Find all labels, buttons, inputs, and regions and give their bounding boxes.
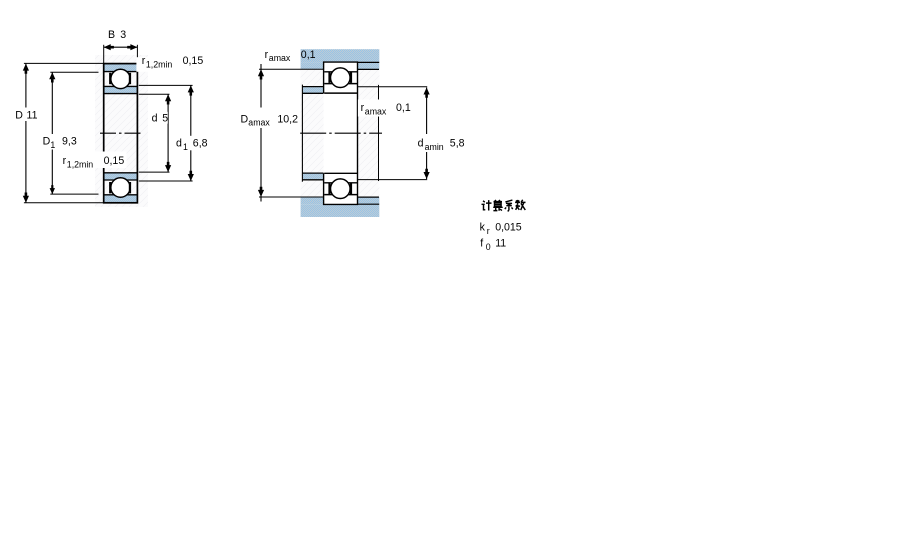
svg-text:d: d — [418, 137, 424, 149]
svg-text:f: f — [480, 238, 483, 250]
svg-text:d: d — [152, 112, 158, 124]
svg-text:1: 1 — [50, 140, 55, 150]
svg-text:D: D — [15, 109, 23, 121]
svg-text:0,15: 0,15 — [104, 155, 125, 167]
svg-text:5: 5 — [162, 112, 168, 124]
svg-text:0,15: 0,15 — [183, 55, 204, 67]
svg-text:1,2min: 1,2min — [146, 60, 173, 70]
svg-text:amax: amax — [269, 53, 291, 63]
svg-text:0,1: 0,1 — [301, 49, 316, 61]
svg-text:amin: amin — [425, 142, 444, 152]
svg-text:0,015: 0,015 — [495, 222, 522, 234]
svg-text:D: D — [43, 136, 51, 148]
svg-text:d: d — [176, 138, 182, 150]
svg-text:0,1: 0,1 — [396, 102, 411, 114]
svg-text:5,8: 5,8 — [450, 137, 465, 149]
svg-text:B: B — [108, 29, 115, 41]
svg-text:1,2min: 1,2min — [67, 159, 94, 169]
svg-text:1: 1 — [183, 142, 188, 152]
svg-text:r: r — [487, 226, 490, 236]
svg-text:amax: amax — [365, 107, 387, 117]
svg-text:11: 11 — [495, 238, 506, 250]
svg-text:D: D — [241, 113, 249, 125]
svg-text:0: 0 — [486, 242, 491, 252]
svg-text:11: 11 — [27, 109, 38, 121]
svg-text:k: k — [480, 222, 486, 234]
svg-text:amax: amax — [248, 118, 270, 128]
svg-text:6,8: 6,8 — [193, 138, 208, 150]
svg-text:9,3: 9,3 — [62, 136, 77, 148]
svg-text:3: 3 — [120, 29, 126, 41]
svg-text:10,2: 10,2 — [277, 113, 298, 125]
